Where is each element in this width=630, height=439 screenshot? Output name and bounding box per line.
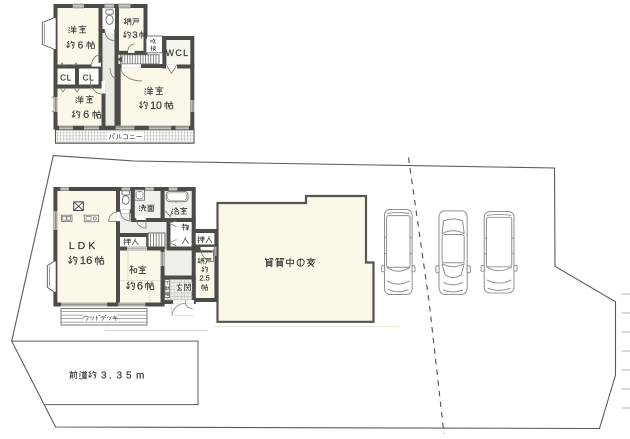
svg-text:6: 6 (78, 40, 84, 51)
svg-text:WCL: WCL (166, 48, 190, 58)
svg-text:6: 6 (83, 109, 89, 121)
svg-text:10: 10 (150, 100, 162, 112)
svg-text:3: 3 (132, 29, 137, 40)
svg-text:2.5: 2.5 (199, 274, 209, 283)
svg-text:5: 5 (126, 370, 132, 381)
svg-text:3: 3 (101, 370, 107, 381)
svg-text:LDK: LDK (69, 240, 98, 252)
svg-text:CL: CL (83, 73, 95, 82)
svg-text:CL: CL (60, 73, 72, 82)
svg-text:3: 3 (117, 370, 123, 381)
svg-text:6: 6 (137, 281, 143, 293)
svg-text:.: . (109, 370, 112, 381)
svg-text:m: m (136, 370, 144, 381)
svg-text:16: 16 (80, 255, 93, 267)
